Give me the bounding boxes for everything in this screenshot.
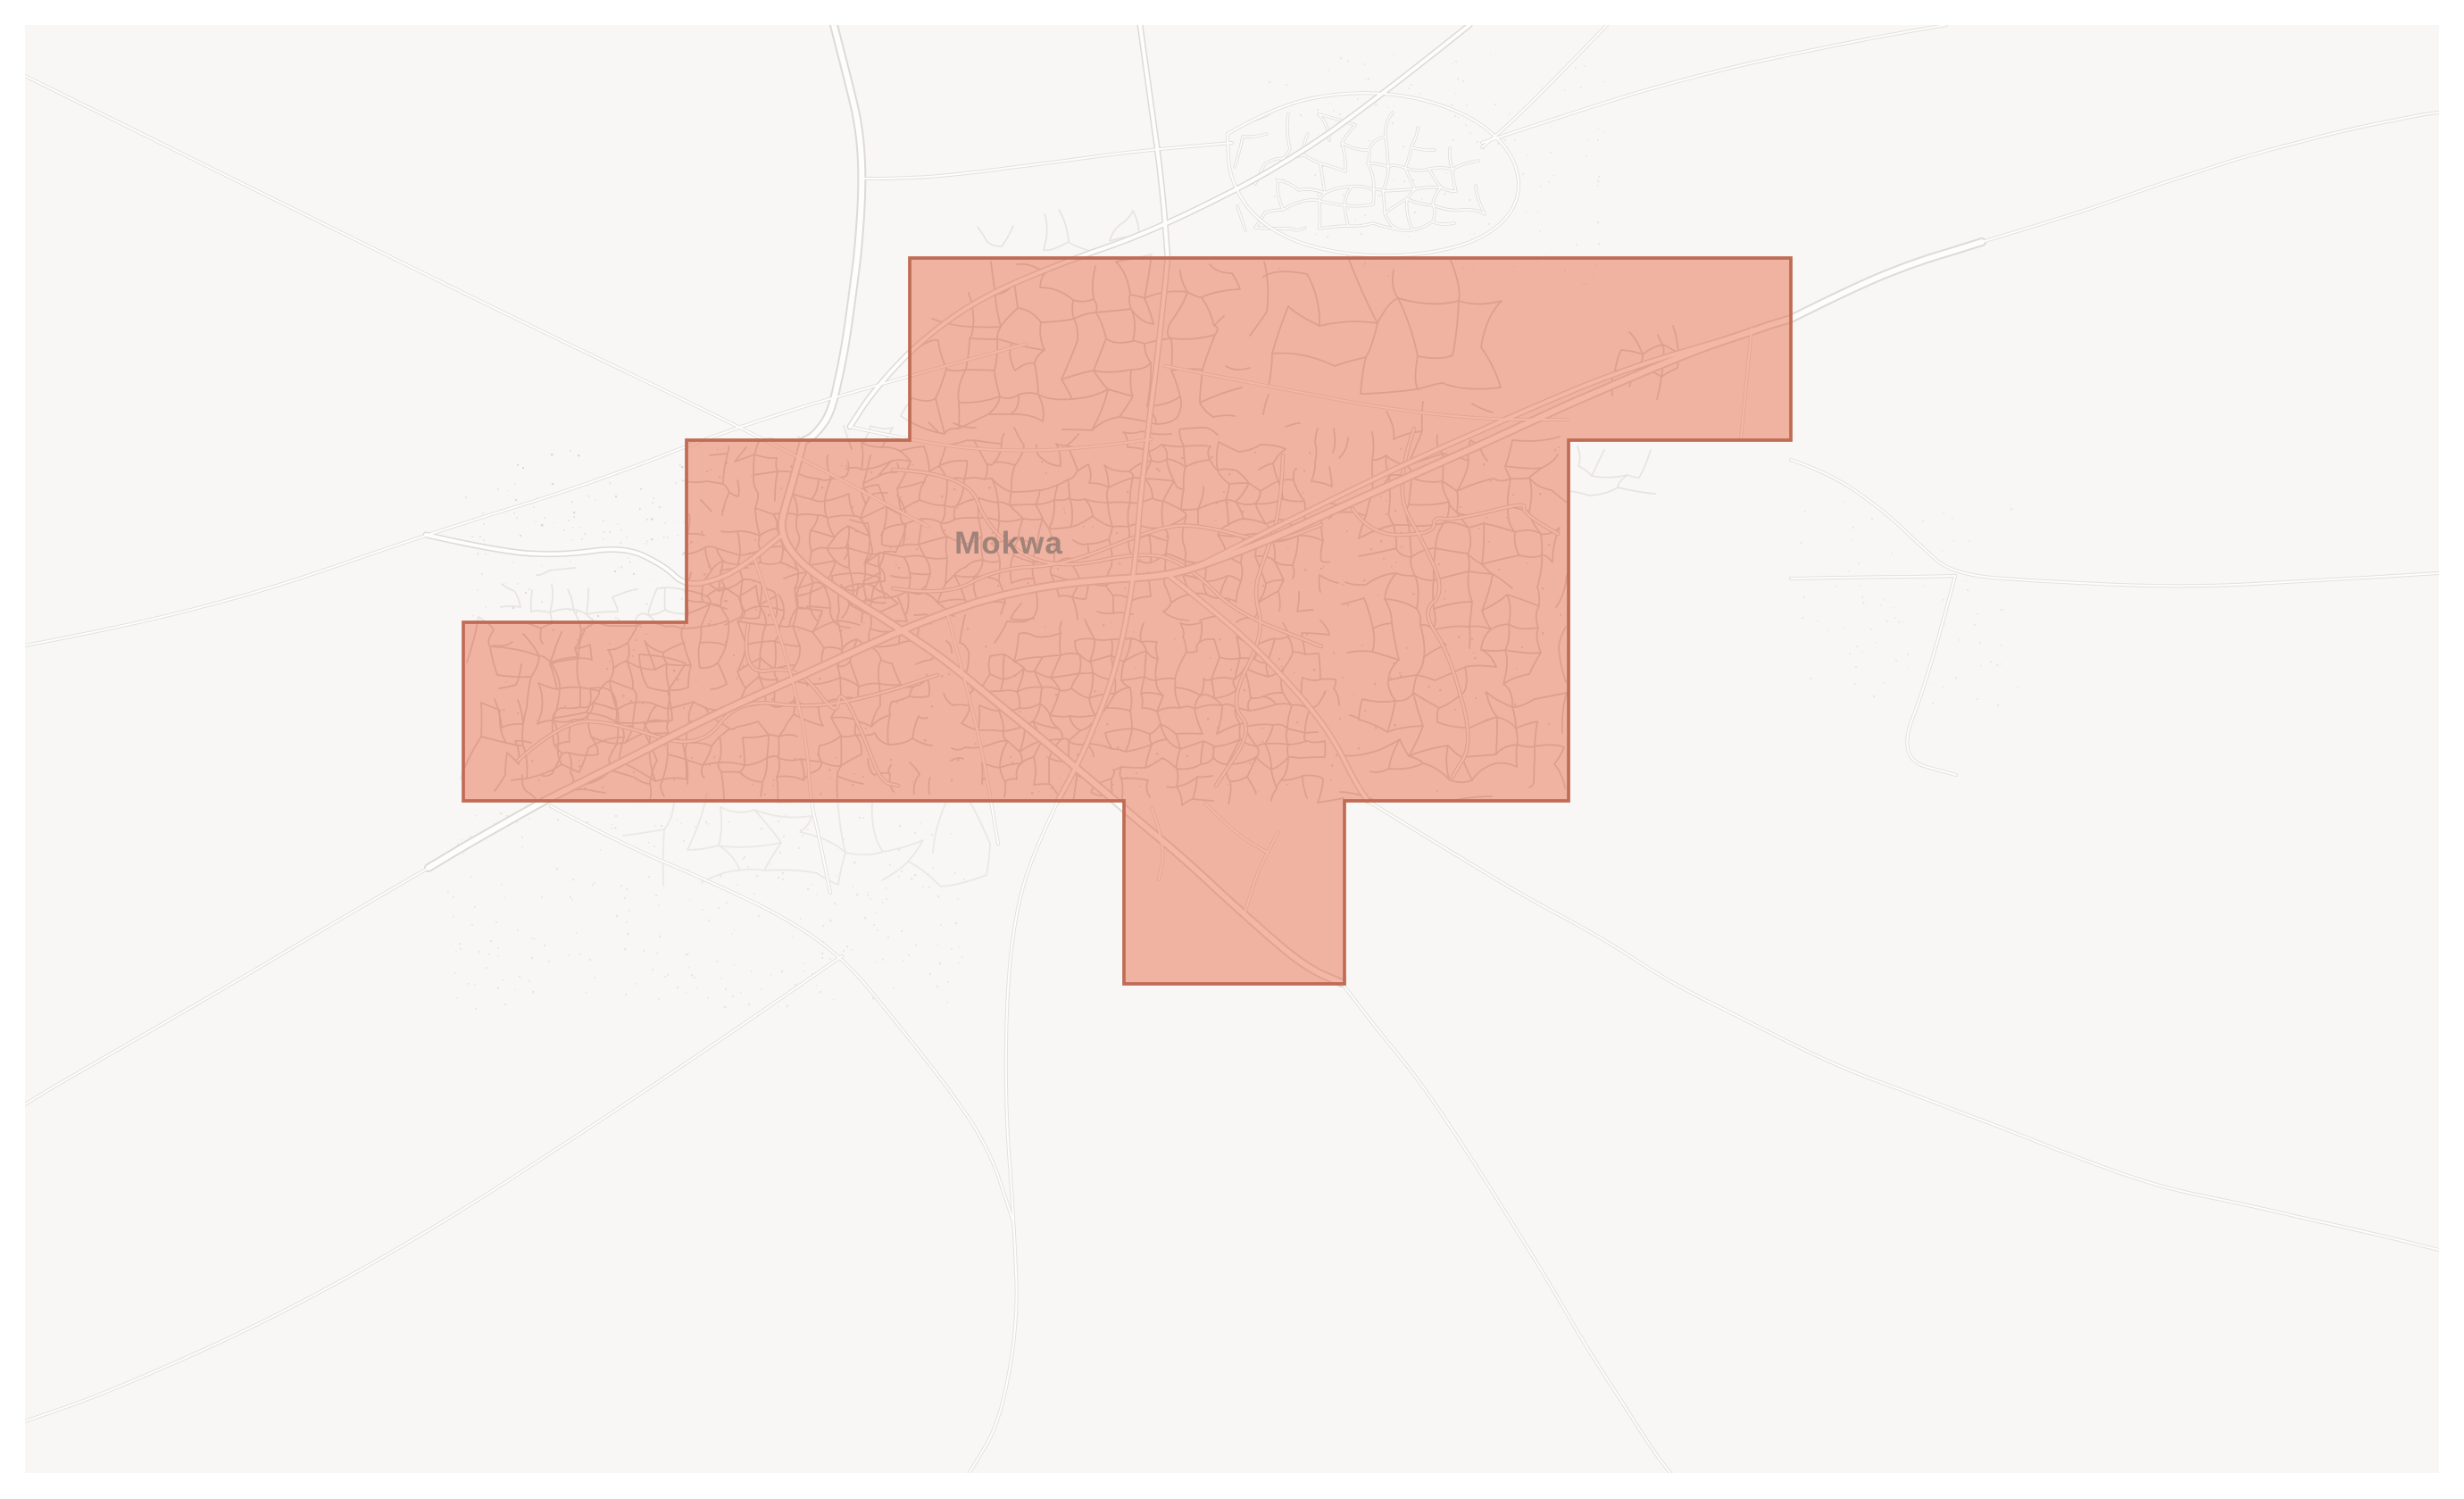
svg-text:Mokwa: Mokwa bbox=[954, 526, 1063, 561]
